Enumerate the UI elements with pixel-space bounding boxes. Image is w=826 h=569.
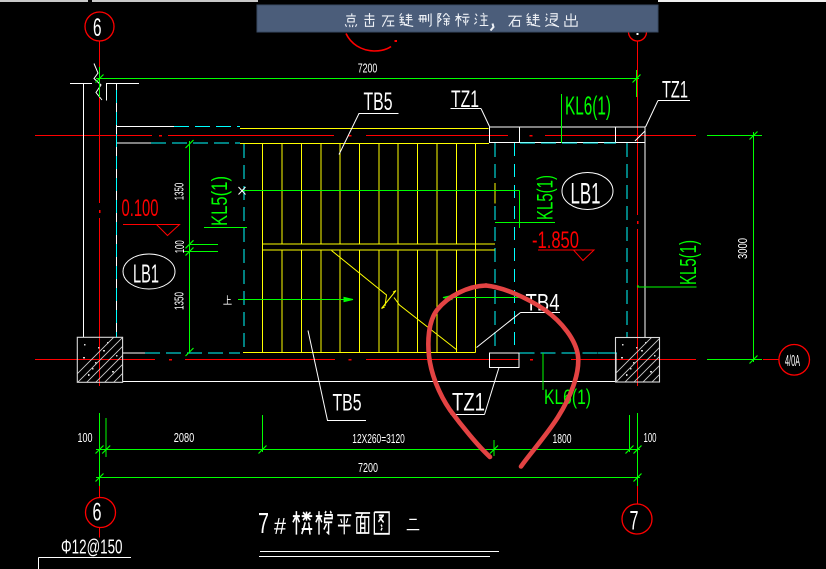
- svg-text:LB1: LB1: [133, 259, 159, 289]
- svg-text:TB5: TB5: [333, 390, 362, 417]
- svg-text:3000: 3000: [736, 238, 750, 259]
- svg-text:7: 7: [258, 508, 269, 540]
- svg-text:TZ1: TZ1: [451, 86, 479, 113]
- svg-text:KL5(1): KL5(1): [207, 176, 232, 226]
- svg-text:6: 6: [93, 14, 102, 42]
- svg-text:100: 100: [173, 240, 187, 253]
- svg-text:TZ1: TZ1: [662, 77, 688, 104]
- svg-text:12X260=3120: 12X260=3120: [352, 432, 405, 446]
- svg-text:1800: 1800: [553, 432, 572, 446]
- svg-text:7: 7: [630, 506, 639, 536]
- svg-text:7200: 7200: [358, 62, 378, 76]
- svg-text:KL5(1): KL5(1): [675, 240, 701, 285]
- svg-text:7200: 7200: [358, 461, 378, 475]
- svg-text:6: 6: [93, 499, 102, 527]
- svg-text:1350: 1350: [173, 292, 187, 310]
- svg-text:1350: 1350: [173, 183, 187, 201]
- svg-text:100: 100: [78, 431, 93, 445]
- svg-text:KL5(1): KL5(1): [533, 175, 558, 220]
- svg-text:TZ1: TZ1: [452, 389, 485, 417]
- svg-text:100: 100: [644, 431, 657, 445]
- svg-text:4/0A: 4/0A: [785, 353, 800, 370]
- svg-text:#: #: [274, 513, 286, 539]
- svg-text:TB5: TB5: [364, 88, 393, 116]
- svg-text:KL6(1): KL6(1): [565, 91, 611, 121]
- svg-text:2080: 2080: [174, 431, 195, 445]
- svg-text:Φ12@150: Φ12@150: [61, 537, 123, 559]
- svg-text:LB1: LB1: [571, 178, 601, 211]
- svg-text:0.100: 0.100: [122, 195, 159, 222]
